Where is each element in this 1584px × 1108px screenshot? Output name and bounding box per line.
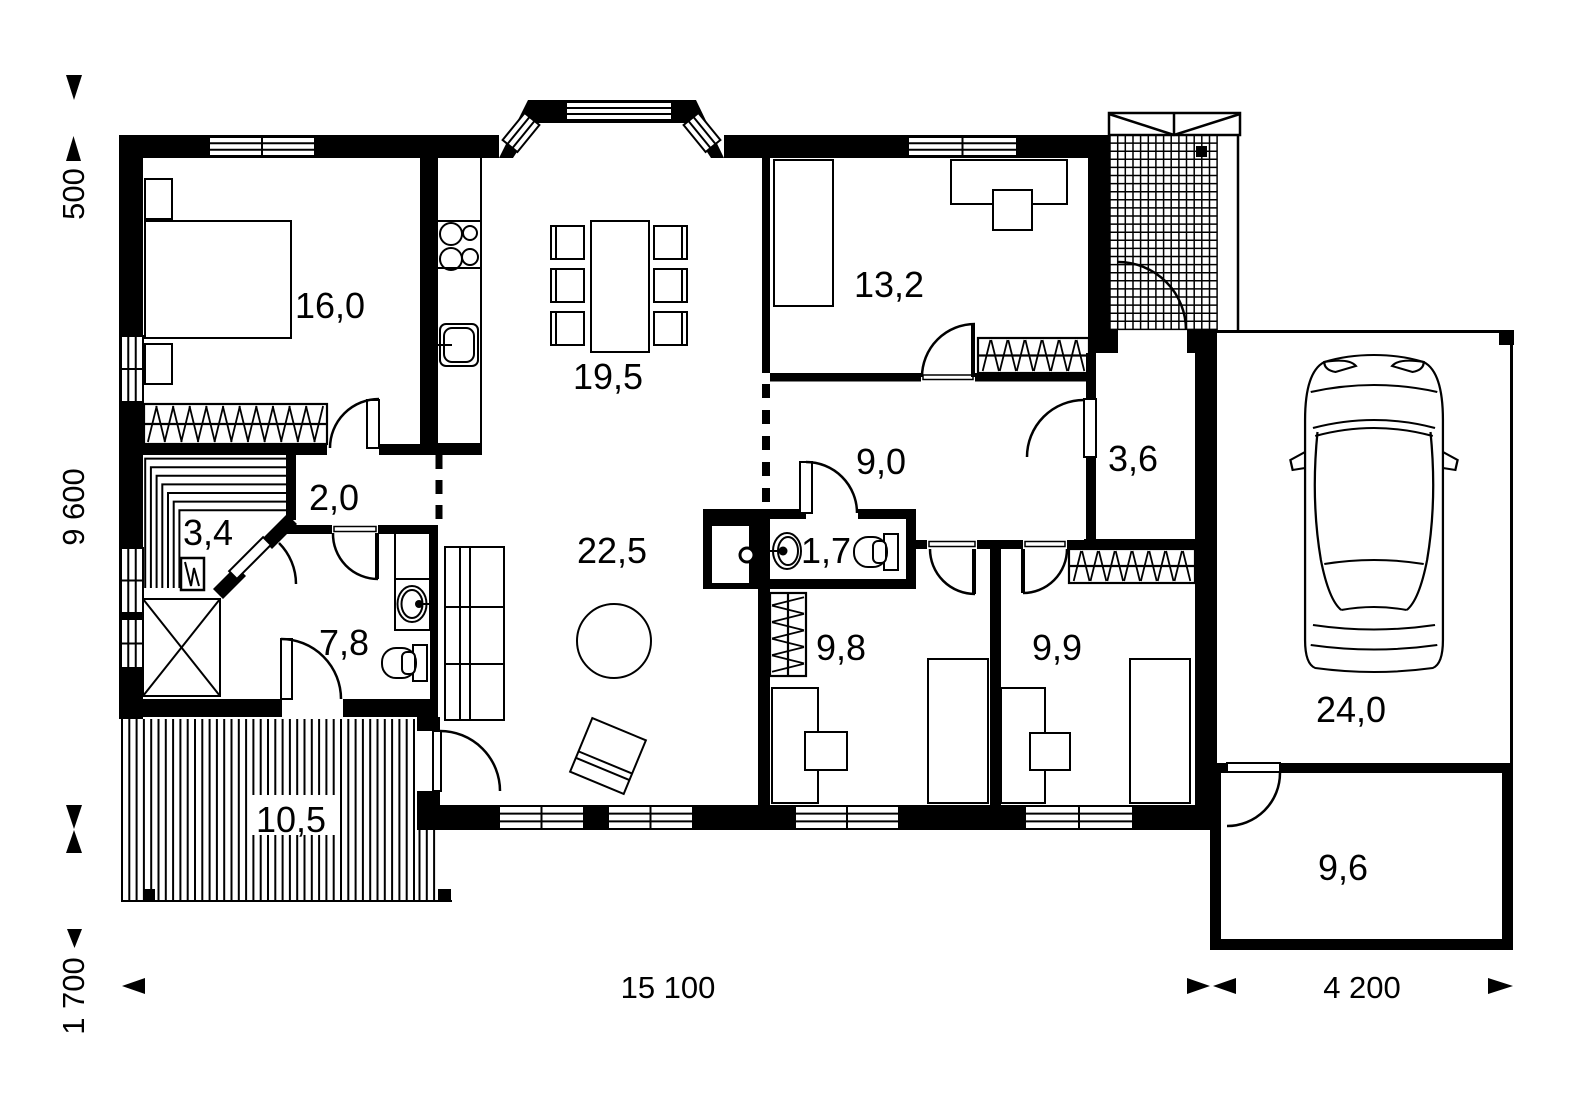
svg-text:7,8: 7,8 [319, 622, 369, 663]
svg-text:9 600: 9 600 [56, 468, 91, 546]
svg-text:19,5: 19,5 [573, 356, 643, 397]
svg-text:10,5: 10,5 [256, 799, 326, 840]
svg-text:22,5: 22,5 [577, 530, 647, 571]
svg-text:3,6: 3,6 [1108, 438, 1158, 479]
svg-text:3,4: 3,4 [183, 512, 233, 553]
svg-text:9,8: 9,8 [816, 627, 866, 668]
svg-text:9,9: 9,9 [1032, 627, 1082, 668]
svg-text:16,0: 16,0 [295, 285, 365, 326]
svg-text:15 100: 15 100 [621, 970, 716, 1005]
svg-text:4 200: 4 200 [1323, 970, 1401, 1005]
svg-text:9,6: 9,6 [1318, 847, 1368, 888]
svg-text:13,2: 13,2 [854, 264, 924, 305]
svg-text:1,7: 1,7 [801, 530, 851, 571]
svg-text:1 700: 1 700 [56, 957, 91, 1035]
svg-text:2,0: 2,0 [309, 477, 359, 518]
svg-text:9,0: 9,0 [856, 441, 906, 482]
svg-text:500: 500 [56, 168, 91, 220]
svg-text:24,0: 24,0 [1316, 689, 1386, 730]
